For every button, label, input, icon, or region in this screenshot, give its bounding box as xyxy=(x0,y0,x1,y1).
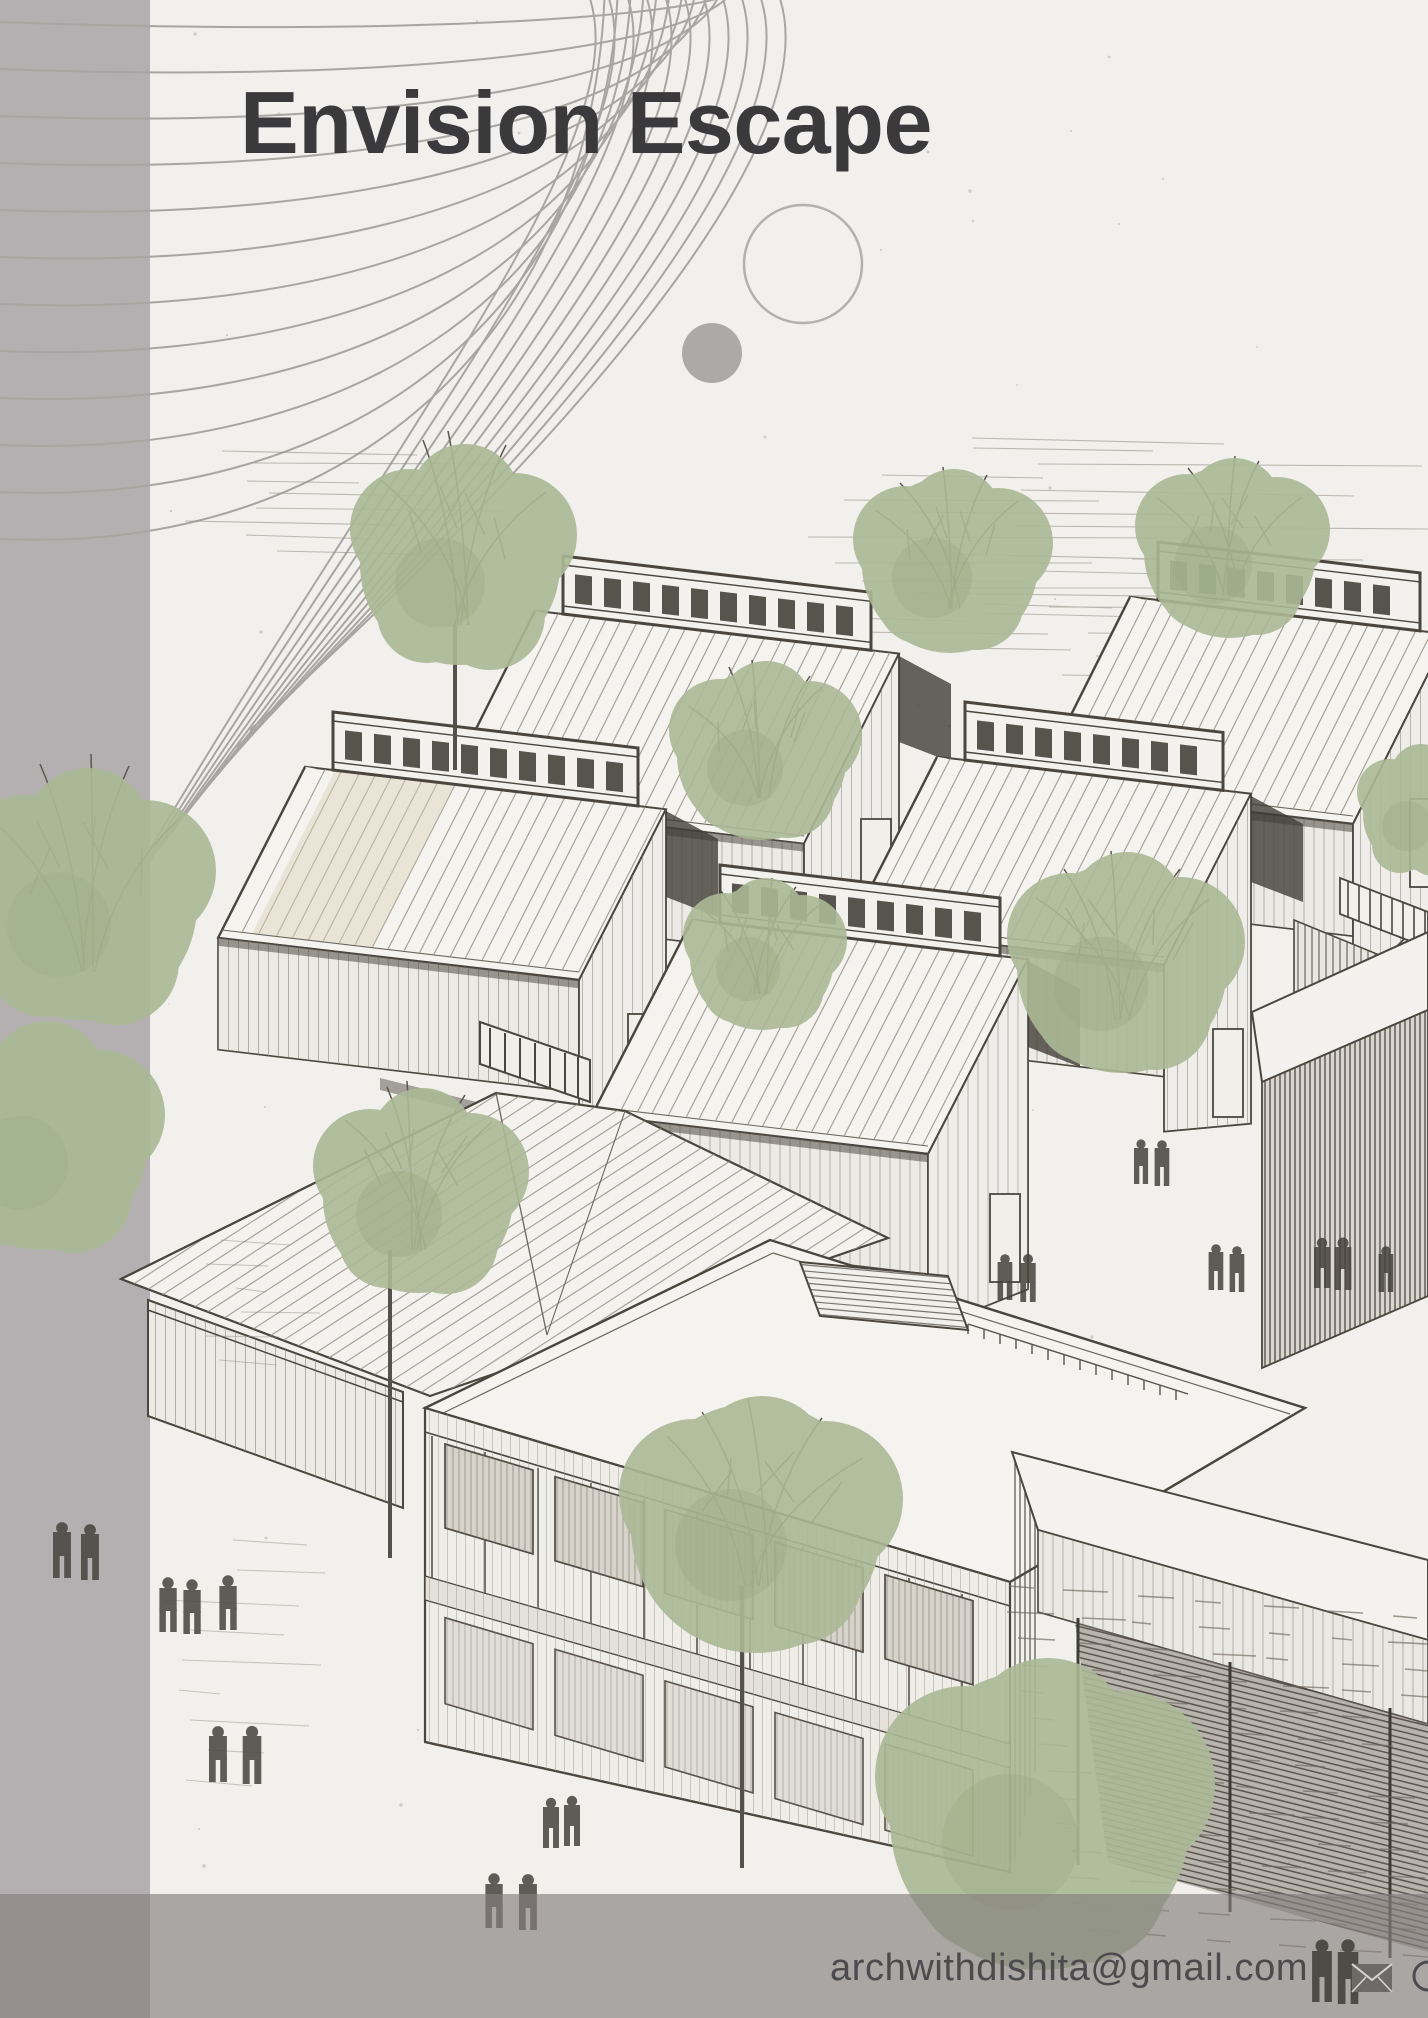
svg-text:Envision Escape: Envision Escape xyxy=(240,73,932,172)
svg-text:archwithdishita@gmail.com: archwithdishita@gmail.com xyxy=(830,1947,1308,1989)
